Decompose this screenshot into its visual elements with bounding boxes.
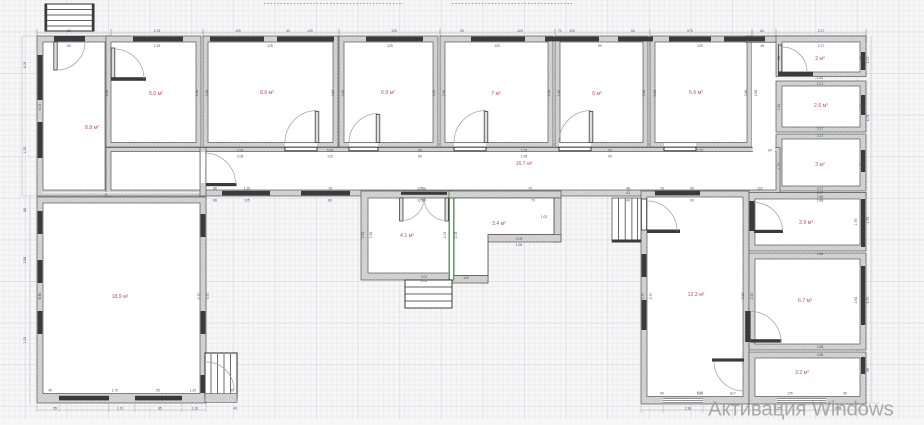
svg-text:90: 90	[660, 392, 664, 396]
svg-text:8.6 м²: 8.6 м²	[260, 90, 274, 96]
svg-text:46: 46	[233, 407, 237, 411]
svg-text:2.17: 2.17	[817, 134, 824, 138]
svg-text:90: 90	[608, 149, 612, 153]
svg-text:2.66: 2.66	[547, 90, 551, 97]
svg-text:5.70: 5.70	[866, 297, 870, 304]
svg-text:1.75: 1.75	[854, 219, 858, 226]
svg-text:80: 80	[67, 29, 71, 33]
svg-text:64: 64	[631, 29, 635, 33]
svg-text:2.88: 2.88	[817, 345, 824, 349]
svg-text:90: 90	[460, 29, 464, 33]
svg-text:5.95: 5.95	[327, 149, 334, 153]
svg-text:2.66: 2.66	[642, 90, 646, 97]
svg-text:1.25: 1.25	[244, 187, 251, 191]
svg-text:4.05: 4.05	[866, 115, 870, 122]
svg-text:2.92: 2.92	[369, 232, 373, 239]
svg-text:48: 48	[626, 187, 630, 191]
svg-text:2.66: 2.66	[442, 90, 446, 97]
svg-text:2.08: 2.08	[237, 155, 244, 159]
svg-text:2.28: 2.28	[697, 149, 704, 153]
svg-text:5.70: 5.70	[641, 293, 645, 300]
svg-text:125: 125	[697, 44, 703, 48]
svg-text:102: 102	[757, 187, 763, 191]
svg-text:2.08: 2.08	[237, 149, 244, 153]
svg-text:4.05: 4.05	[38, 104, 42, 111]
svg-text:64: 64	[760, 29, 764, 33]
svg-text:2.17: 2.17	[866, 57, 870, 64]
svg-text:1.02: 1.02	[541, 215, 548, 219]
svg-text:2.38: 2.38	[685, 407, 692, 411]
svg-text:125: 125	[235, 29, 241, 33]
svg-text:48: 48	[760, 44, 764, 48]
svg-text:125: 125	[244, 199, 250, 203]
svg-text:65: 65	[158, 407, 162, 411]
svg-text:90: 90	[598, 44, 602, 48]
svg-text:3.9 м²: 3.9 м²	[799, 220, 813, 226]
svg-text:3.4 м²: 3.4 м²	[492, 221, 506, 227]
svg-text:1.52: 1.52	[859, 104, 863, 111]
svg-text:58: 58	[422, 187, 426, 191]
svg-text:1.25: 1.25	[154, 29, 161, 33]
svg-text:40: 40	[286, 29, 290, 33]
svg-text:88: 88	[859, 56, 863, 60]
svg-text:90: 90	[690, 199, 694, 203]
svg-text:2.05: 2.05	[421, 279, 428, 283]
svg-text:5.70: 5.70	[206, 293, 210, 300]
svg-text:1.75: 1.75	[777, 163, 781, 170]
svg-text:86: 86	[418, 149, 422, 153]
svg-text:16.7 м²: 16.7 м²	[516, 161, 533, 167]
svg-text:1.05: 1.05	[521, 155, 528, 159]
svg-text:18.9 м²: 18.9 м²	[112, 294, 129, 300]
svg-text:2.17: 2.17	[818, 44, 825, 48]
svg-text:70: 70	[531, 199, 535, 203]
svg-text:100: 100	[463, 276, 469, 280]
svg-text:5.70: 5.70	[649, 293, 653, 300]
svg-text:2.05: 2.05	[516, 237, 523, 241]
svg-text:5.70: 5.70	[38, 293, 42, 300]
svg-text:1.05: 1.05	[516, 243, 523, 247]
svg-text:6.7 м²: 6.7 м²	[798, 298, 812, 304]
svg-text:2.17: 2.17	[817, 127, 824, 131]
svg-text:88: 88	[777, 56, 781, 60]
svg-text:76: 76	[660, 187, 664, 191]
svg-text:2.88: 2.88	[23, 257, 27, 264]
svg-text:1.25: 1.25	[23, 337, 27, 344]
svg-text:125: 125	[391, 29, 397, 33]
svg-text:86: 86	[213, 187, 217, 191]
svg-text:1.52: 1.52	[777, 104, 781, 111]
svg-text:2.17: 2.17	[818, 29, 825, 33]
svg-text:1.25: 1.25	[154, 44, 161, 48]
svg-text:2.66: 2.66	[195, 90, 199, 97]
svg-text:1.25: 1.25	[23, 147, 27, 154]
svg-text:40: 40	[626, 199, 630, 203]
svg-text:6 м²: 6 м²	[592, 91, 602, 97]
svg-text:90: 90	[690, 187, 694, 191]
svg-text:2.92: 2.92	[750, 293, 754, 300]
svg-text:125: 125	[327, 155, 333, 159]
svg-text:80: 80	[418, 155, 422, 159]
svg-text:88: 88	[23, 208, 27, 212]
svg-text:5.70: 5.70	[197, 293, 201, 300]
svg-text:45: 45	[230, 389, 234, 393]
svg-text:617: 617	[697, 391, 703, 395]
svg-text:64: 64	[768, 149, 772, 153]
svg-text:1.05: 1.05	[521, 149, 528, 153]
svg-text:2.66: 2.66	[557, 90, 561, 97]
svg-text:125: 125	[569, 29, 575, 33]
svg-text:125: 125	[267, 44, 273, 48]
svg-text:6.6 м²: 6.6 м²	[689, 90, 703, 96]
svg-text:2.66: 2.66	[341, 90, 345, 97]
svg-text:2.17: 2.17	[817, 82, 824, 86]
svg-text:3.2 м²: 3.2 м²	[795, 370, 809, 376]
svg-text:45: 45	[48, 389, 52, 393]
svg-text:125: 125	[494, 44, 500, 48]
svg-text:5.0 м²: 5.0 м²	[149, 91, 163, 97]
svg-text:6.9 м²: 6.9 м²	[381, 90, 395, 96]
svg-text:12.3 м²: 12.3 м²	[688, 292, 705, 298]
svg-text:96: 96	[843, 392, 847, 396]
svg-text:55: 55	[156, 389, 160, 393]
svg-text:55: 55	[53, 407, 57, 411]
svg-text:2.66: 2.66	[432, 90, 436, 97]
svg-text:2.88: 2.88	[817, 199, 824, 203]
svg-text:58: 58	[422, 198, 426, 202]
svg-text:125: 125	[787, 392, 793, 396]
svg-text:2.92: 2.92	[741, 293, 745, 300]
svg-text:2.88: 2.88	[817, 252, 824, 256]
svg-text:1.70: 1.70	[117, 407, 124, 411]
svg-text:2 м²: 2 м²	[815, 56, 825, 62]
svg-text:96: 96	[866, 368, 870, 372]
svg-text:80: 80	[67, 44, 71, 48]
svg-text:125: 125	[307, 29, 313, 33]
svg-text:2.66: 2.66	[653, 90, 657, 97]
svg-text:2.88: 2.88	[817, 195, 824, 199]
svg-text:1.70: 1.70	[112, 389, 119, 393]
svg-text:86: 86	[213, 199, 217, 203]
svg-text:78: 78	[328, 187, 332, 191]
svg-text:617: 617	[730, 392, 736, 396]
svg-text:2.05: 2.05	[443, 232, 447, 239]
svg-text:3 м²: 3 м²	[815, 162, 825, 168]
svg-text:90: 90	[608, 155, 612, 159]
svg-text:125: 125	[517, 29, 523, 33]
svg-text:4.05: 4.05	[23, 62, 27, 69]
svg-text:2.92: 2.92	[361, 232, 365, 239]
svg-text:2.88: 2.88	[817, 353, 824, 357]
svg-text:71: 71	[558, 29, 562, 33]
svg-text:2.66: 2.66	[331, 90, 335, 97]
svg-text:8.8 м²: 8.8 м²	[85, 125, 99, 131]
svg-text:4.1 м²: 4.1 м²	[400, 233, 414, 239]
svg-text:Активация Windows: Активация Windows	[708, 398, 894, 421]
svg-text:2.66: 2.66	[105, 90, 109, 97]
svg-text:2.66: 2.66	[205, 90, 209, 97]
svg-text:1.75: 1.75	[866, 217, 870, 224]
svg-text:2.92: 2.92	[854, 297, 858, 304]
svg-text:575: 575	[687, 29, 693, 33]
svg-text:2.17: 2.17	[817, 187, 824, 191]
svg-text:1.20: 1.20	[192, 407, 199, 411]
svg-text:43: 43	[626, 191, 630, 195]
svg-text:2.66: 2.66	[744, 90, 748, 97]
svg-text:1.75: 1.75	[859, 163, 863, 170]
svg-text:2.66: 2.66	[754, 90, 758, 97]
svg-text:2.6 м²: 2.6 м²	[814, 103, 828, 109]
svg-text:2.05: 2.05	[454, 232, 458, 239]
svg-text:80: 80	[328, 199, 332, 203]
svg-text:70: 70	[528, 187, 532, 191]
svg-text:7 м²: 7 м²	[491, 91, 501, 97]
svg-text:1.20: 1.20	[190, 389, 197, 393]
svg-text:1.52: 1.52	[817, 76, 824, 80]
svg-text:125: 125	[387, 44, 393, 48]
